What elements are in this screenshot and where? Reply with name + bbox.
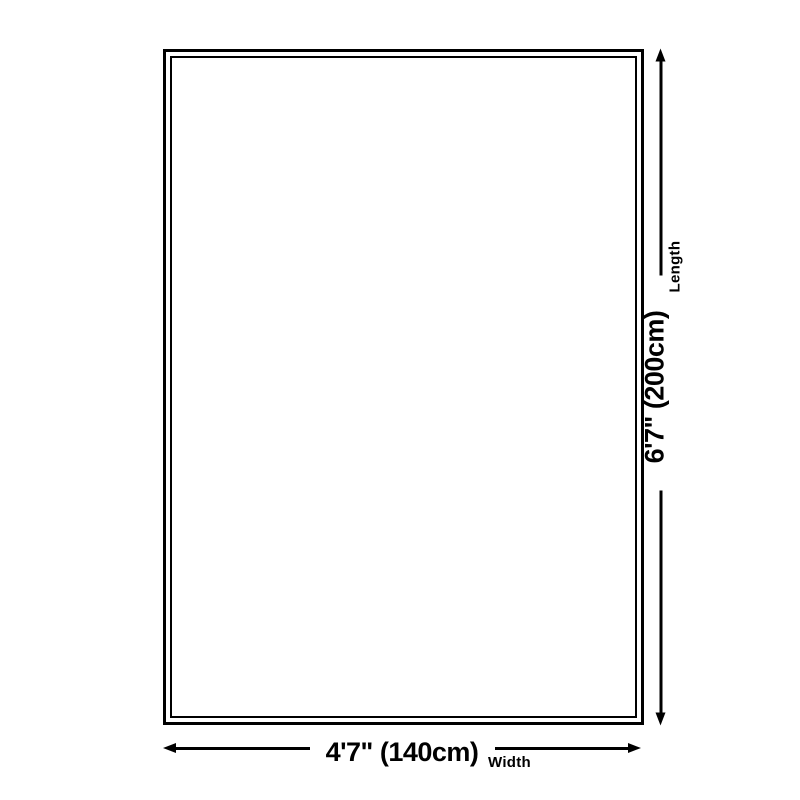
length-dimension: 6'7" (200cm) Length <box>642 48 682 725</box>
rug-size-diagram: 6'7" (200cm) Length 4'7" (140cm) Width <box>0 0 800 800</box>
rug-outline <box>163 49 644 725</box>
arrow-right-icon <box>628 743 641 753</box>
length-label: Length <box>667 240 682 292</box>
length-arrow-shaft-top <box>659 61 662 275</box>
arrow-up-icon <box>655 48 665 61</box>
width-dimension: 4'7" (140cm) Width <box>163 730 641 770</box>
rug-inner-border <box>170 56 637 718</box>
width-arrow-shaft-right <box>495 747 628 750</box>
width-label: Width <box>488 755 531 770</box>
width-value: 4'7" (140cm) <box>163 738 641 766</box>
length-value: 6'7" (200cm) <box>640 48 668 725</box>
